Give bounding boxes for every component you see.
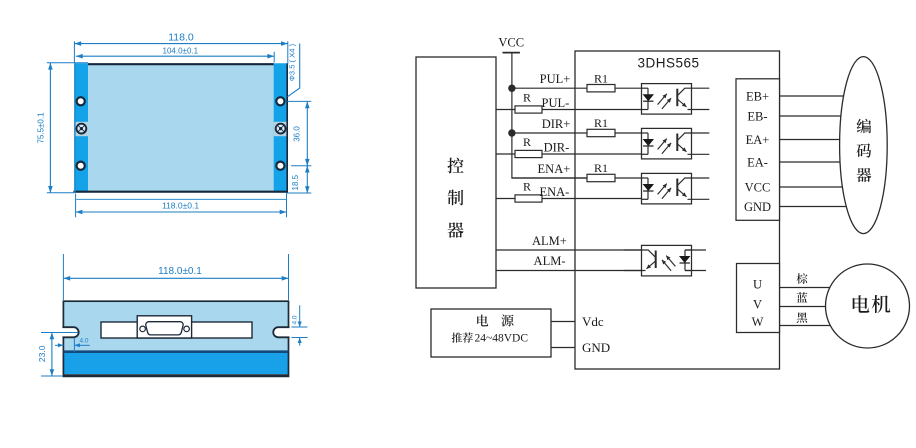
svg-text:R: R xyxy=(523,135,531,149)
svg-text:104.0±0.1: 104.0±0.1 xyxy=(163,46,199,55)
svg-text:W: W xyxy=(752,315,764,329)
svg-text:ENA+: ENA+ xyxy=(538,162,571,176)
svg-text:DIR+: DIR+ xyxy=(542,117,571,131)
svg-text:R1: R1 xyxy=(594,116,608,130)
svg-text:DIR-: DIR- xyxy=(544,141,570,155)
svg-text:R: R xyxy=(523,179,531,193)
svg-text:3DHS565: 3DHS565 xyxy=(637,56,699,71)
svg-text:PUL-: PUL- xyxy=(542,96,570,110)
svg-text:4.0: 4.0 xyxy=(291,315,298,324)
svg-text:118.0±0.1: 118.0±0.1 xyxy=(158,266,202,277)
svg-text:23.0: 23.0 xyxy=(37,345,47,362)
svg-text:EB+: EB+ xyxy=(746,89,769,103)
svg-text:U: U xyxy=(753,277,762,291)
svg-text:V: V xyxy=(753,297,762,311)
svg-text:118.0±0.1: 118.0±0.1 xyxy=(162,200,199,210)
svg-text:VCC: VCC xyxy=(745,180,771,194)
svg-text:18.5: 18.5 xyxy=(291,174,300,190)
svg-text:PUL+: PUL+ xyxy=(540,72,571,86)
svg-text:Vdc: Vdc xyxy=(582,314,604,329)
svg-text:36.0: 36.0 xyxy=(292,126,301,142)
svg-text:R1: R1 xyxy=(594,71,608,85)
svg-text:EA-: EA- xyxy=(747,155,768,169)
svg-text:Φ3.5 ( X4 ): Φ3.5 ( X4 ) xyxy=(288,43,297,81)
svg-text:ENA-: ENA- xyxy=(539,185,569,199)
svg-text:ALM-: ALM- xyxy=(534,254,566,268)
svg-text:EB-: EB- xyxy=(747,109,767,123)
svg-text:118.0: 118.0 xyxy=(168,31,194,43)
svg-text:ALM+: ALM+ xyxy=(532,234,567,248)
svg-text:R: R xyxy=(523,90,531,104)
svg-text:GND: GND xyxy=(744,200,771,214)
svg-text:GND: GND xyxy=(582,340,610,355)
svg-text:75.5±0.1: 75.5±0.1 xyxy=(37,112,46,144)
svg-text:24~48VDC: 24~48VDC xyxy=(475,332,529,344)
svg-text:R1: R1 xyxy=(594,161,608,175)
svg-text:VCC: VCC xyxy=(498,36,524,50)
svg-text:4.0: 4.0 xyxy=(79,338,88,345)
svg-text:EA+: EA+ xyxy=(746,133,770,147)
